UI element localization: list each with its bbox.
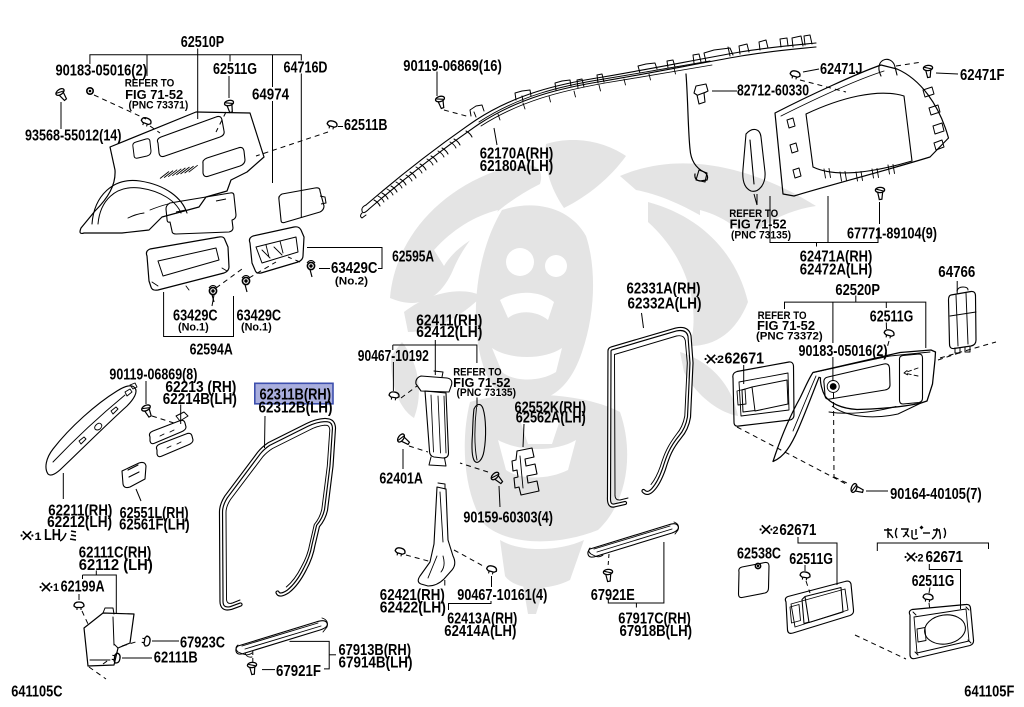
svg-text:62422(LH): 62422(LH) <box>380 600 446 617</box>
svg-text:90467-10161(4): 90467-10161(4) <box>457 587 547 604</box>
svg-text:67771-89104(9): 67771-89104(9) <box>847 226 937 243</box>
svg-text:90183-05016(2): 90183-05016(2) <box>799 343 888 360</box>
svg-text:2: 2 <box>717 354 724 366</box>
svg-text:62520P: 62520P <box>835 282 880 299</box>
svg-text:90467-10192: 90467-10192 <box>358 348 429 365</box>
svg-text:62111B: 62111B <box>154 650 198 667</box>
svg-text:63429C: 63429C <box>331 260 377 277</box>
svg-text:62511G: 62511G <box>213 61 257 78</box>
svg-text:62332A(LH): 62332A(LH) <box>628 296 702 313</box>
svg-text:90164-40105(7): 90164-40105(7) <box>890 486 982 503</box>
svg-text:67921F: 67921F <box>276 663 321 680</box>
svg-text:62199A: 62199A <box>61 579 105 596</box>
svg-text:1: 1 <box>35 531 42 543</box>
svg-text:(No.1): (No.1) <box>241 322 272 334</box>
svg-text:62511G: 62511G <box>912 573 955 590</box>
svg-text:62180A(LH): 62180A(LH) <box>480 158 554 175</box>
svg-text:62511G: 62511G <box>789 551 833 568</box>
svg-text:62671: 62671 <box>926 549 964 566</box>
svg-text:62538C: 62538C <box>737 546 781 563</box>
svg-text:62112 (LH): 62112 (LH) <box>79 557 153 574</box>
svg-text:62312B(LH): 62312B(LH) <box>259 400 333 417</box>
svg-text:62562A(LH): 62562A(LH) <box>516 410 586 427</box>
svg-text:62510P: 62510P <box>181 34 225 51</box>
svg-text:62511G: 62511G <box>870 309 914 326</box>
svg-text:(No.1): (No.1) <box>178 322 209 334</box>
svg-text:62561F(LH): 62561F(LH) <box>119 517 190 534</box>
svg-text:2: 2 <box>773 525 779 537</box>
svg-text:67914B(LH): 67914B(LH) <box>339 655 413 672</box>
svg-text:(No.2): (No.2) <box>335 276 368 288</box>
svg-text:67918B(LH): 67918B(LH) <box>620 623 693 640</box>
svg-text:641105F: 641105F <box>964 684 1014 701</box>
svg-text:1: 1 <box>53 582 59 594</box>
svg-text:64716D: 64716D <box>284 60 328 77</box>
svg-text:62401A: 62401A <box>379 471 423 488</box>
svg-text:62414A(LH): 62414A(LH) <box>444 623 516 640</box>
svg-text:(PNC 73372): (PNC 73372) <box>756 331 823 343</box>
svg-text:62471F: 62471F <box>960 67 1005 84</box>
svg-text:(PNC 73135): (PNC 73135) <box>731 230 791 242</box>
svg-text:64974: 64974 <box>252 87 289 104</box>
svg-text:(PNC 73371): (PNC 73371) <box>129 100 189 112</box>
svg-text:62595A: 62595A <box>392 249 434 266</box>
svg-text:90159-60303(4): 90159-60303(4) <box>463 510 553 527</box>
svg-text:62671: 62671 <box>779 522 816 539</box>
svg-text:62214B(LH): 62214B(LH) <box>163 391 237 408</box>
svg-text:90119-06869(16): 90119-06869(16) <box>403 58 502 75</box>
svg-text:62594A: 62594A <box>190 342 233 359</box>
svg-text:641105C: 641105C <box>11 684 62 701</box>
svg-text:67921E: 67921E <box>591 587 635 604</box>
svg-text:62412(LH): 62412(LH) <box>416 324 482 341</box>
svg-text:93568-55012(14): 93568-55012(14) <box>25 128 122 145</box>
svg-text:62472A(LH): 62472A(LH) <box>800 262 873 279</box>
svg-text:62471J: 62471J <box>820 61 863 78</box>
svg-text:(PNC 73135): (PNC 73135) <box>457 387 517 399</box>
svg-text:62671: 62671 <box>725 351 765 368</box>
svg-text:82712-60330: 82712-60330 <box>737 83 809 100</box>
svg-text:2: 2 <box>918 553 924 565</box>
svg-text:62511B: 62511B <box>344 117 388 134</box>
svg-text:LH: LH <box>44 527 61 544</box>
svg-text:64766: 64766 <box>938 264 975 281</box>
